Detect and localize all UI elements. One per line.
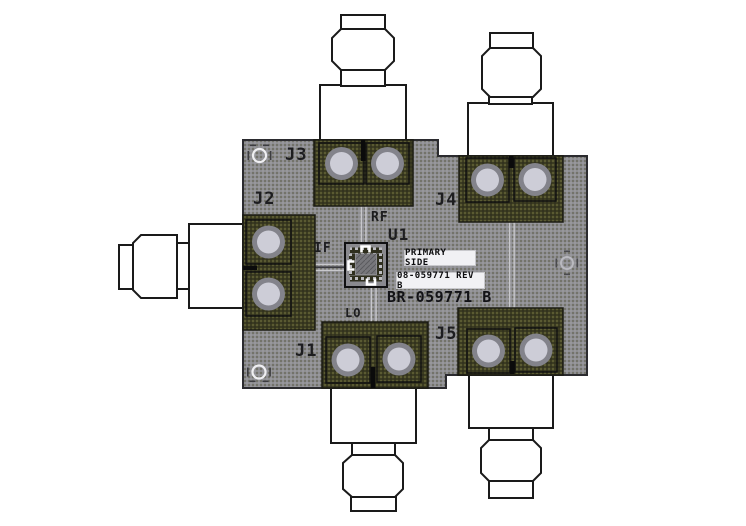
designator-j1: J1 bbox=[295, 343, 317, 360]
connector-cap bbox=[351, 497, 396, 511]
designator-j3: J3 bbox=[285, 147, 307, 164]
designator-u1: U1 bbox=[388, 227, 409, 243]
mixer-chip-u1 bbox=[345, 243, 387, 287]
connector-nut bbox=[332, 29, 394, 70]
connector-neck bbox=[352, 443, 395, 455]
rev-sticker: 08-059771 REV B bbox=[396, 272, 485, 289]
pcb-assembly-drawing: J3 J2 J4 J1 J5 U1 RF IF LO BR-059771 B P… bbox=[0, 0, 746, 526]
via-pad bbox=[337, 349, 360, 372]
designator-j4: J4 bbox=[435, 192, 457, 209]
port-label-lo: LO bbox=[345, 307, 361, 319]
connector-neck bbox=[177, 243, 189, 289]
via-pad bbox=[525, 339, 548, 362]
port-label-if: IF bbox=[314, 242, 332, 255]
connector-body bbox=[320, 85, 406, 140]
via-pad bbox=[376, 152, 399, 175]
part-number: BR-059771 B bbox=[387, 290, 492, 305]
sma-connector-lo-bottom bbox=[331, 388, 416, 511]
chip-pins-left bbox=[349, 254, 355, 275]
via-pad bbox=[257, 231, 280, 254]
primary-side-sticker: PRIMARY SIDE bbox=[404, 250, 476, 266]
pad-group-j2 bbox=[243, 215, 315, 330]
pad-group-j3 bbox=[314, 140, 413, 206]
via-pad bbox=[477, 340, 500, 363]
connector-nut bbox=[343, 455, 403, 497]
pin-slot bbox=[509, 156, 514, 168]
pad-group-j4 bbox=[459, 156, 563, 222]
sma-connector-j5-bottom bbox=[469, 374, 553, 498]
pin-slot bbox=[361, 140, 366, 161]
connector-cap bbox=[490, 33, 533, 48]
connector-body bbox=[468, 103, 553, 156]
connector-body bbox=[189, 224, 243, 308]
via-pad bbox=[257, 283, 280, 306]
via-pad bbox=[476, 169, 499, 192]
connector-neck bbox=[341, 70, 385, 86]
sma-connector-if-left bbox=[119, 224, 243, 308]
connector-cap bbox=[341, 15, 385, 29]
connector-nut bbox=[482, 48, 541, 97]
designator-j5: J5 bbox=[435, 326, 457, 343]
pad-group-j1 bbox=[322, 322, 428, 388]
pin-slot bbox=[371, 367, 376, 388]
designator-j2: J2 bbox=[253, 191, 275, 208]
sma-connector-j4-top bbox=[468, 33, 553, 156]
connector-cap bbox=[119, 245, 133, 289]
connector-nut bbox=[481, 440, 541, 481]
via-pad bbox=[388, 348, 411, 371]
connector-body bbox=[331, 388, 416, 443]
connector-body bbox=[469, 374, 553, 428]
chip-die bbox=[356, 254, 376, 274]
board-graphics bbox=[0, 0, 746, 526]
via-pad bbox=[524, 168, 547, 191]
port-label-rf: RF bbox=[371, 211, 389, 224]
via-pad bbox=[330, 152, 353, 175]
chip-pins-top bbox=[350, 248, 382, 254]
chip-pins-right bbox=[377, 254, 383, 275]
connector-neck bbox=[489, 428, 533, 440]
pin-slot bbox=[243, 266, 257, 271]
sma-connector-rf-top bbox=[320, 15, 406, 140]
pin-slot bbox=[510, 361, 515, 374]
pad-group-j5 bbox=[458, 308, 563, 375]
connector-nut bbox=[133, 235, 177, 298]
connector-cap bbox=[489, 481, 533, 498]
